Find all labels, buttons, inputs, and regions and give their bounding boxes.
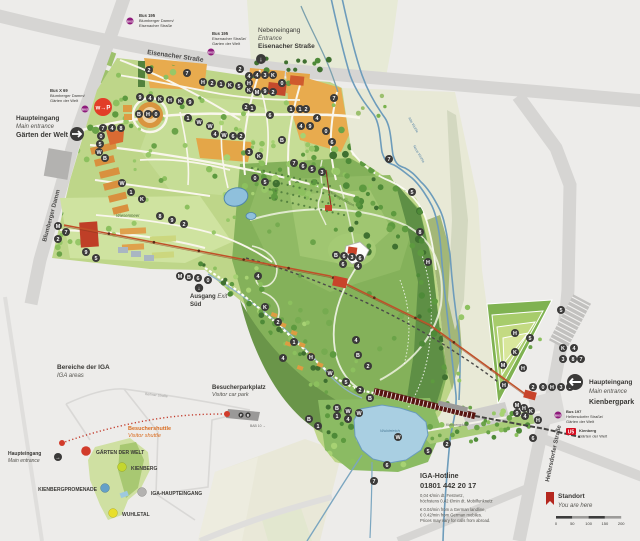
svg-text:8: 8 — [159, 214, 162, 220]
svg-text:2: 2 — [367, 364, 370, 370]
svg-text:1: 1 — [336, 414, 339, 420]
svg-text:2: 2 — [245, 105, 248, 111]
svg-text:KIENBERG: KIENBERG — [131, 466, 158, 472]
svg-text:Eisenacher Straße: Eisenacher Straße — [258, 43, 315, 50]
svg-text:BUS: BUS — [208, 51, 214, 55]
svg-text:4: 4 — [316, 116, 319, 122]
svg-text:Besuchershuttle: Besuchershuttle — [128, 426, 171, 432]
svg-text:4: 4 — [347, 417, 350, 423]
svg-text:6: 6 — [232, 134, 235, 140]
svg-text:5: 5 — [411, 190, 414, 196]
svg-text:2: 2 — [211, 81, 214, 87]
svg-text:BUS: BUS — [127, 20, 133, 24]
svg-text:6: 6 — [331, 140, 334, 146]
svg-text:→: → — [55, 455, 60, 461]
svg-text:2: 2 — [359, 388, 362, 394]
svg-text:5: 5 — [427, 449, 430, 455]
svg-text:5: 5 — [345, 380, 348, 386]
svg-text:4: 4 — [256, 73, 259, 79]
svg-text:€ 0.42/min from German mobiles: € 0.42/min from German mobiles. — [420, 513, 482, 518]
svg-text:2: 2 — [57, 237, 60, 243]
svg-text:K: K — [140, 197, 144, 203]
svg-text:K: K — [257, 154, 261, 160]
svg-text:6: 6 — [386, 463, 389, 469]
svg-text:100: 100 — [585, 521, 592, 526]
svg-text:Gärten der Welt: Gärten der Welt — [579, 434, 608, 439]
svg-text:Besucherparkplatz: Besucherparkplatz — [212, 385, 266, 391]
svg-text:4: 4 — [357, 264, 360, 270]
svg-text:9: 9 — [516, 411, 519, 417]
svg-text:U5: U5 — [568, 430, 575, 436]
svg-text:4: 4 — [214, 132, 217, 138]
svg-text:7: 7 — [186, 71, 189, 77]
svg-text:5: 5 — [238, 84, 241, 90]
svg-text:7: 7 — [388, 157, 391, 163]
svg-text:4: 4 — [524, 414, 527, 420]
svg-text:K: K — [247, 88, 251, 94]
svg-text:5: 5 — [95, 256, 98, 262]
svg-text:B: B — [137, 112, 141, 118]
svg-text:9: 9 — [264, 89, 267, 95]
svg-text:7: 7 — [333, 96, 336, 102]
svg-text:3: 3 — [264, 73, 267, 79]
svg-text:Wuhleteich: Wuhleteich — [380, 428, 401, 433]
svg-text:Wiesenmeer: Wiesenmeer — [116, 213, 140, 218]
svg-text:2: 2 — [183, 222, 186, 228]
svg-text:0: 0 — [542, 385, 545, 391]
svg-text:Gärten der Welt: Gärten der Welt — [16, 132, 69, 139]
svg-text:1: 1 — [293, 340, 296, 346]
svg-text:BUS: BUS — [555, 414, 561, 418]
svg-text:6: 6 — [197, 276, 200, 282]
svg-text:K: K — [513, 350, 517, 356]
svg-text:höchstens 0,42 €/min dt. Mobil: höchstens 0,42 €/min dt. Mobilfunknetz — [420, 499, 493, 504]
svg-text:01801 442 20 17: 01801 442 20 17 — [420, 481, 476, 490]
svg-text:4: 4 — [149, 96, 152, 102]
svg-text:50: 50 — [570, 521, 575, 526]
svg-text:K: K — [178, 99, 182, 105]
svg-text:Ausgang Exit: Ausgang Exit — [190, 294, 228, 300]
svg-text:4: 4 — [257, 274, 260, 280]
svg-text:9: 9 — [139, 95, 142, 101]
svg-text:IGA-Hotline: IGA-Hotline — [420, 473, 459, 480]
svg-text:Prices may vary for calls from: Prices may vary for calls from abroad. — [420, 518, 490, 523]
svg-text:B: B — [307, 417, 311, 423]
svg-text:H: H — [522, 406, 526, 412]
svg-text:3: 3 — [248, 150, 251, 156]
svg-text:Gärten der Welt: Gärten der Welt — [50, 98, 79, 103]
svg-text:5: 5 — [529, 336, 532, 342]
svg-text:4: 4 — [300, 124, 303, 130]
svg-text:7: 7 — [373, 479, 376, 485]
svg-text:0: 0 — [207, 278, 210, 284]
svg-text:Main entrance: Main entrance — [8, 458, 40, 464]
svg-text:Garten der Welt: Garten der Welt — [212, 41, 241, 46]
svg-text:M: M — [501, 363, 506, 369]
svg-text:B: B — [335, 406, 339, 412]
svg-text:B: B — [356, 353, 360, 359]
svg-text:0,04 €/min dt. Festnetz,: 0,04 €/min dt. Festnetz, — [420, 493, 464, 498]
svg-text:€ 0.04/min from a German landl: € 0.04/min from a German landline, — [420, 507, 486, 512]
svg-text:K: K — [263, 305, 267, 311]
svg-text:1: 1 — [299, 107, 302, 113]
svg-text:2: 2 — [239, 67, 242, 73]
svg-text:H: H — [146, 112, 150, 118]
svg-text:5: 5 — [311, 167, 314, 173]
svg-text:1: 1 — [251, 106, 254, 112]
svg-text:8: 8 — [120, 126, 123, 132]
svg-text:6: 6 — [302, 164, 305, 170]
svg-text:1: 1 — [130, 190, 133, 196]
svg-text:H: H — [502, 383, 506, 389]
svg-text:B: B — [187, 275, 191, 281]
svg-text:9: 9 — [309, 124, 312, 130]
svg-text:M: M — [178, 274, 183, 280]
svg-text:H: H — [168, 98, 172, 104]
svg-text:H: H — [536, 418, 540, 424]
svg-text:↓: ↓ — [198, 286, 201, 292]
svg-text:Visitor shuttle: Visitor shuttle — [128, 433, 161, 439]
svg-text:Kienberg: Kienberg — [579, 428, 597, 433]
svg-text:0: 0 — [100, 134, 103, 140]
svg-text:KIENBERGPROMENADE: KIENBERGPROMENADE — [38, 487, 98, 493]
svg-text:3: 3 — [321, 170, 324, 176]
svg-text:2: 2 — [532, 385, 535, 391]
svg-text:2: 2 — [277, 320, 280, 326]
svg-text:4: 4 — [355, 338, 358, 344]
svg-text:0: 0 — [281, 81, 284, 87]
svg-text:B: B — [368, 396, 372, 402]
svg-text:8: 8 — [572, 357, 575, 363]
svg-text:9: 9 — [189, 100, 192, 106]
svg-text:Gärten der Welt: Gärten der Welt — [566, 419, 595, 424]
svg-text:BAB 10 →: BAB 10 → — [250, 424, 266, 428]
svg-text:7: 7 — [293, 161, 296, 167]
svg-text:2: 2 — [272, 90, 275, 96]
svg-text:H: H — [521, 366, 525, 372]
svg-text:Haupteingang: Haupteingang — [8, 451, 41, 457]
svg-text:M: M — [515, 403, 520, 409]
svg-text:M: M — [255, 90, 260, 96]
svg-text:BUS: BUS — [82, 108, 88, 112]
svg-text:6: 6 — [342, 262, 345, 268]
svg-text:B: B — [280, 138, 284, 144]
svg-text:M: M — [56, 224, 61, 230]
svg-text:B: B — [103, 156, 107, 162]
svg-text:2: 2 — [240, 134, 243, 140]
svg-text:4: 4 — [573, 346, 576, 352]
svg-text:Haupteingang: Haupteingang — [589, 379, 632, 386]
svg-text:2: 2 — [305, 107, 308, 113]
svg-text:IGA-HAUPTEINGANG: IGA-HAUPTEINGANG — [151, 491, 202, 497]
svg-text:6: 6 — [269, 113, 272, 119]
svg-text:0: 0 — [325, 129, 328, 135]
svg-text:0: 0 — [155, 112, 158, 118]
svg-text:Süd: Süd — [190, 302, 202, 308]
svg-text:9: 9 — [171, 218, 174, 224]
svg-text:Bereiche der IGA: Bereiche der IGA — [57, 364, 110, 371]
svg-text:6: 6 — [359, 256, 362, 262]
svg-text:3: 3 — [562, 357, 565, 363]
svg-text:3: 3 — [351, 255, 354, 261]
svg-text:You are here: You are here — [558, 503, 593, 509]
svg-text:↓: ↓ — [259, 56, 262, 63]
svg-text:IGA areas: IGA areas — [57, 373, 84, 379]
svg-text:6: 6 — [532, 436, 535, 442]
svg-text:WUHLETAL: WUHLETAL — [122, 512, 150, 518]
svg-text:Nebeneingang: Nebeneingang — [258, 27, 301, 34]
svg-text:2: 2 — [446, 442, 449, 448]
svg-text:2: 2 — [148, 68, 151, 74]
svg-text:w→P: w→P — [95, 106, 111, 112]
svg-text:H: H — [201, 80, 205, 86]
svg-text:150: 150 — [602, 521, 609, 526]
svg-text:B: B — [334, 253, 338, 259]
svg-text:1: 1 — [220, 82, 223, 88]
svg-text:1: 1 — [317, 424, 320, 430]
svg-text:K: K — [228, 83, 232, 89]
svg-text:5: 5 — [99, 142, 102, 148]
svg-text:H: H — [550, 385, 554, 391]
svg-text:H: H — [426, 260, 430, 266]
svg-text:5: 5 — [264, 180, 267, 186]
svg-text:Entrance: Entrance — [258, 36, 283, 42]
svg-text:Kienbergpark: Kienbergpark — [589, 399, 634, 406]
svg-text:8: 8 — [419, 230, 422, 236]
svg-text:6: 6 — [343, 254, 346, 260]
svg-text:Standort: Standort — [558, 493, 586, 500]
svg-text:K: K — [158, 97, 162, 103]
svg-text:K: K — [529, 409, 533, 415]
svg-text:Kienbergplatz: Kienbergplatz — [446, 423, 468, 427]
svg-text:K: K — [561, 346, 565, 352]
svg-text:Visitor car park: Visitor car park — [212, 392, 249, 398]
svg-text:200: 200 — [618, 521, 625, 526]
svg-text:GÄRTEN DER WELT: GÄRTEN DER WELT — [96, 449, 144, 456]
svg-text:Haupteingang: Haupteingang — [16, 115, 59, 122]
svg-text:H: H — [513, 331, 517, 337]
svg-text:7: 7 — [65, 230, 68, 236]
svg-text:3: 3 — [560, 385, 563, 391]
svg-text:1: 1 — [187, 116, 190, 122]
svg-text:Main entrance: Main entrance — [16, 124, 55, 130]
svg-text:5: 5 — [560, 308, 563, 314]
svg-text:K: K — [271, 73, 275, 79]
svg-text:1: 1 — [290, 107, 293, 113]
svg-text:H: H — [309, 355, 313, 361]
svg-text:Eisenacher Straße: Eisenacher Straße — [139, 23, 173, 28]
svg-text:9: 9 — [85, 250, 88, 256]
svg-text:4: 4 — [111, 126, 114, 132]
svg-text:7: 7 — [580, 357, 583, 363]
svg-text:7: 7 — [102, 126, 105, 132]
svg-text:0: 0 — [254, 176, 257, 182]
svg-text:Main entrance: Main entrance — [589, 389, 628, 395]
svg-text:4: 4 — [282, 356, 285, 362]
